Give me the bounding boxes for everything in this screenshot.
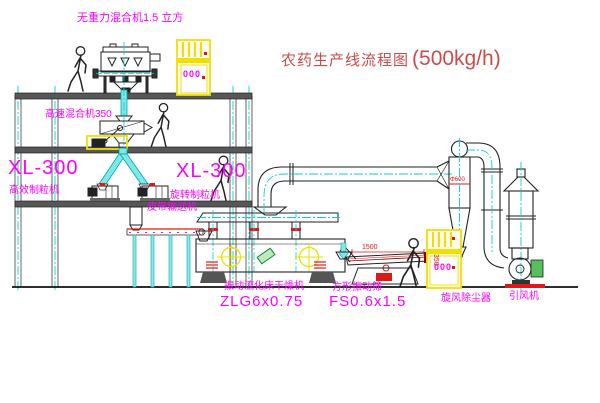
- granulator-right: [138, 183, 170, 201]
- title-text: 农药生产线流程图: [281, 49, 409, 70]
- discharge-chute: [130, 207, 142, 230]
- induced-draft-fan: [505, 248, 545, 288]
- fan-label: 引风机: [509, 292, 539, 302]
- fan-base: [505, 284, 545, 288]
- person-figure-1: [68, 47, 86, 91]
- title-capacity: (500kg/h): [412, 47, 501, 71]
- screen-name-label: 方形振动筛: [332, 283, 382, 293]
- granulator-left-name: 高效制粒机: [9, 186, 59, 196]
- flow-diagram: 农药生产线流程图 (500kg/h) 无重力混合机1.5 立方 高速混合机350…: [0, 0, 600, 403]
- page-title: 农药生产线流程图 (500kg/h): [281, 47, 501, 71]
- dryer-model-label: ZLG6x0.75: [220, 294, 303, 309]
- granulator-right-name: 旋转制粒机: [170, 191, 220, 201]
- conveyor-legs: [133, 235, 190, 287]
- cyclone-outlet-duct: [464, 143, 508, 268]
- belt-conveyor-label: 皮带输送机: [147, 203, 197, 213]
- belt-conveyor: [127, 229, 212, 287]
- cyclone-label: 旋风除尘器: [441, 294, 491, 304]
- cyclone-dia-dim: Φ600: [450, 177, 465, 183]
- fluid-bed-dryer: [196, 210, 356, 283]
- dryer-name-label: 振动流化床干燥机: [224, 282, 304, 292]
- granulator-left: [88, 183, 120, 201]
- cabinet-upper-display: 000: [183, 70, 201, 79]
- gravity-mixer-label: 无重力混合机1.5 立方: [77, 13, 183, 24]
- screen-height-dim: 350: [432, 254, 439, 266]
- dryer-sight-glass: [257, 248, 275, 264]
- control-cabinet-upper: [177, 40, 210, 95]
- high-speed-mixer-label: 高速混合机350: [45, 110, 112, 120]
- person-figure-2: [151, 104, 168, 147]
- screen-model-label: FS0.6x1.5: [329, 294, 406, 309]
- gravity-mixer: [93, 44, 160, 93]
- dryer-exhaust-stubs: [208, 210, 301, 272]
- granulator-left-model: XL-300: [8, 158, 79, 178]
- high-speed-mixer: [87, 116, 152, 149]
- exhaust-duct: [254, 161, 452, 215]
- granulator-right-model: XL-300: [176, 161, 247, 181]
- fan-motor: [531, 260, 543, 277]
- screen-length-dim: 1500: [362, 244, 378, 251]
- duct-transition: [437, 161, 449, 189]
